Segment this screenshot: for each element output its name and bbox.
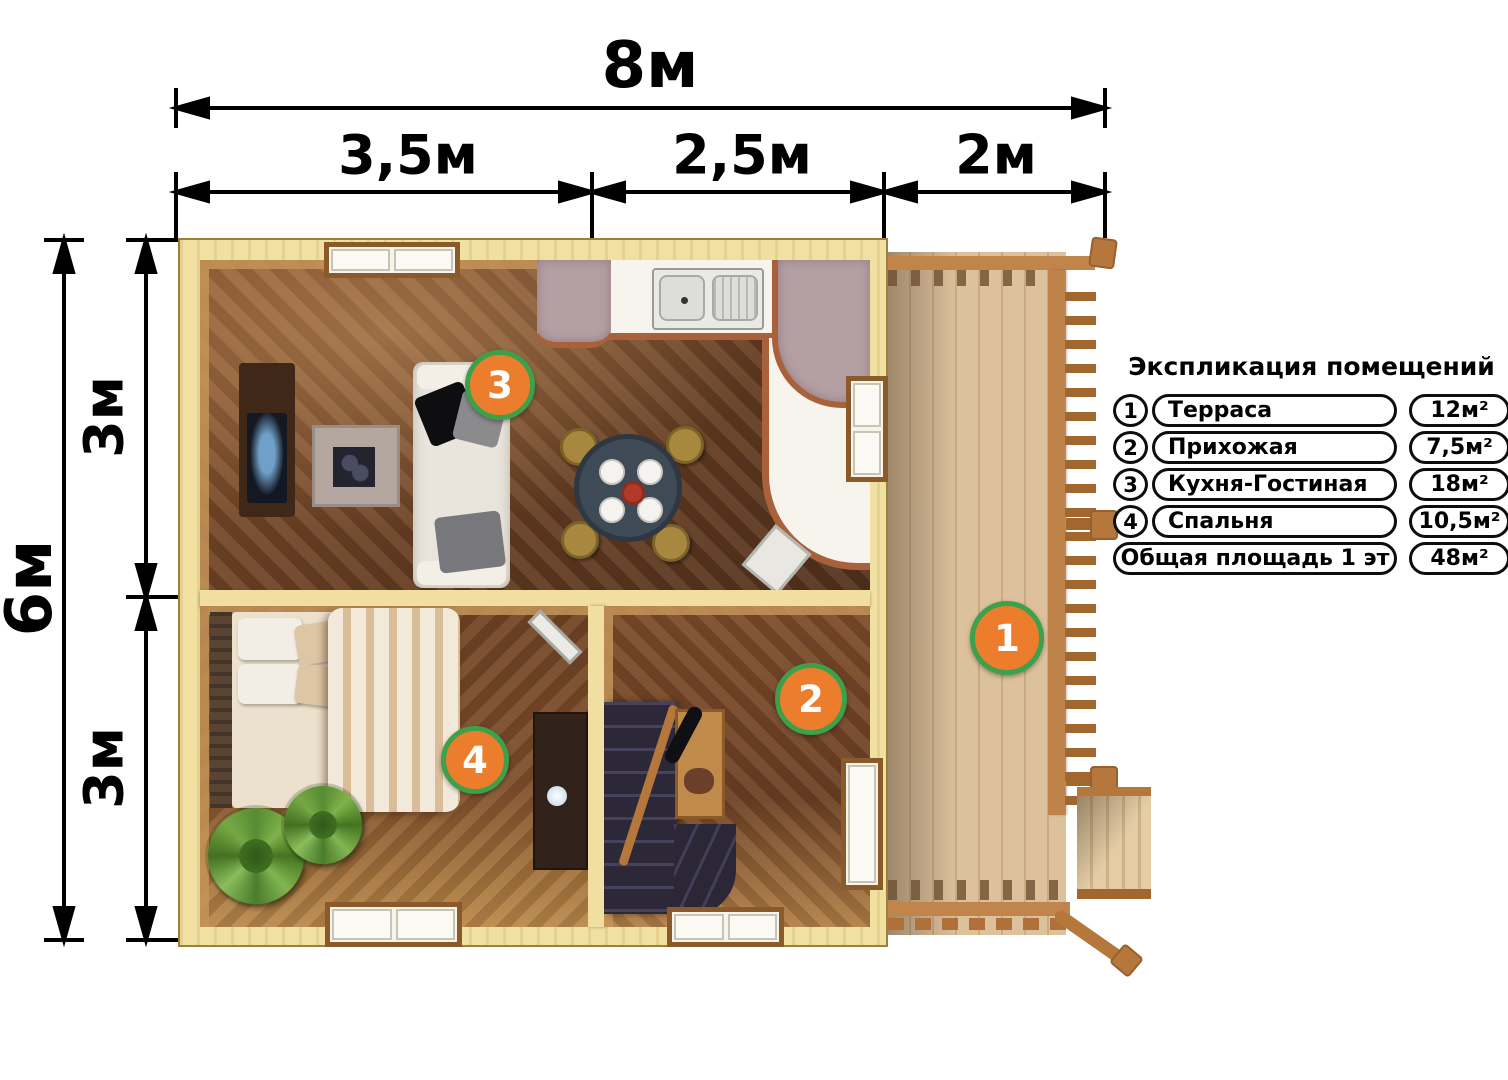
bed-headboard <box>210 612 232 808</box>
bed-pillow <box>238 664 302 704</box>
terrace-steps <box>1077 787 1151 899</box>
room-marker-terrace: 1 <box>970 601 1044 675</box>
legend-row-terrace: 1 Терраса 12м² <box>1113 394 1508 427</box>
window-pane <box>853 383 881 427</box>
terrace-railing <box>1048 270 1065 815</box>
room-marker-kitchen-living: 3 <box>465 350 535 420</box>
legend-title: Экспликация помещений <box>1113 352 1508 381</box>
legend-total-name: Общая площадь 1 эт <box>1113 542 1397 575</box>
place-setting <box>637 459 663 485</box>
legend-num: 2 <box>1113 431 1148 464</box>
railing-post-cap <box>1088 236 1118 269</box>
window-bottom-bedroom <box>325 902 462 947</box>
window-pane <box>728 914 778 940</box>
dim-height-segment-1-label: 3м <box>73 376 136 458</box>
sink-drain <box>681 297 688 304</box>
kitchen-sink <box>652 268 764 330</box>
dining-table <box>574 434 682 542</box>
house-plan <box>178 238 888 947</box>
terrace-beam-bottom <box>888 902 1070 916</box>
sink-basin <box>659 275 705 321</box>
legend-row-bedroom: 4 Спальня 10,5м² <box>1113 505 1508 538</box>
legend-row-total: Общая площадь 1 эт 48м² <box>1113 542 1508 575</box>
bed-duvet <box>328 608 460 812</box>
railing-arm <box>1066 518 1092 530</box>
legend: Экспликация помещений 1 Терраса 12м² 2 П… <box>1113 352 1508 579</box>
room-bedroom <box>200 606 588 927</box>
staircase-turn <box>674 824 736 916</box>
legend-row-hallway: 2 Прихожая 7,5м² <box>1113 431 1508 464</box>
dim-height-total-label: 6м <box>0 540 67 637</box>
legend-area: 12м² <box>1409 394 1508 427</box>
window-pane <box>394 249 453 271</box>
legend-name: Кухня-Гостиная <box>1152 468 1397 501</box>
place-setting <box>599 459 625 485</box>
sofa-blanket <box>434 510 506 574</box>
window-bottom-hallway <box>667 907 784 947</box>
railing-balusters <box>1065 292 1096 815</box>
legend-area: 18м² <box>1409 468 1508 501</box>
dim-width-segment-1-label: 3,5м <box>338 124 478 187</box>
legend-num: 4 <box>1113 505 1148 538</box>
place-setting <box>599 497 625 523</box>
sink-drainer <box>712 275 758 321</box>
legend-area: 10,5м² <box>1409 505 1508 538</box>
legend-name: Терраса <box>1152 394 1397 427</box>
coffee-table <box>312 425 400 507</box>
dim-height-segment-2-label: 3м <box>73 727 136 809</box>
legend-num: 3 <box>1113 468 1148 501</box>
dim-width-total-label: 8м <box>602 29 699 103</box>
floor-plan-page: 8м 3,5м 2,5м 2м 6м 3м 3м <box>0 0 1508 1080</box>
legend-area: 7,5м² <box>1409 431 1508 464</box>
tv-screen <box>247 413 287 503</box>
interior-wall-horizontal <box>200 590 870 606</box>
legend-total-area: 48м² <box>1409 542 1508 575</box>
railing-arm <box>1066 774 1092 786</box>
terrace-beam-top <box>888 256 1095 270</box>
window-pane <box>396 909 456 940</box>
window-pane <box>331 249 390 271</box>
window-pane <box>332 909 392 940</box>
dim-width-segment-3-label: 2м <box>955 124 1037 187</box>
room-kitchen-living <box>200 260 870 590</box>
terrace-door <box>841 758 883 890</box>
gloves <box>684 768 714 794</box>
legend-row-kitchen-living: 3 Кухня-Гостиная 18м² <box>1113 468 1508 501</box>
tv-stand <box>239 363 295 517</box>
dim-width-segment-2-label: 2,5м <box>672 124 812 187</box>
door-glass <box>848 765 876 883</box>
wardrobe <box>533 712 588 870</box>
window-pane <box>853 431 881 475</box>
window-pane <box>674 914 724 940</box>
interior-wall-vertical <box>588 606 604 927</box>
window-right-living <box>846 376 888 482</box>
mirror <box>527 609 582 664</box>
plant <box>284 786 362 864</box>
room-marker-bedroom: 4 <box>441 726 509 794</box>
railing-bottom <box>888 918 1066 930</box>
legend-name: Прихожая <box>1152 431 1397 464</box>
window-top <box>324 242 460 278</box>
room-marker-hallway: 2 <box>775 663 847 735</box>
bed-pillow <box>238 618 302 660</box>
coffee-table-center <box>333 447 375 487</box>
kitchen-cabinet-left <box>537 260 611 348</box>
room-hallway <box>604 606 870 927</box>
terrace-joists-bottom <box>888 880 1066 900</box>
center-dish <box>621 481 645 505</box>
terrace-shadow <box>888 252 958 935</box>
legend-num: 1 <box>1113 394 1148 427</box>
wardrobe-knob <box>547 786 567 806</box>
legend-name: Спальня <box>1152 505 1397 538</box>
